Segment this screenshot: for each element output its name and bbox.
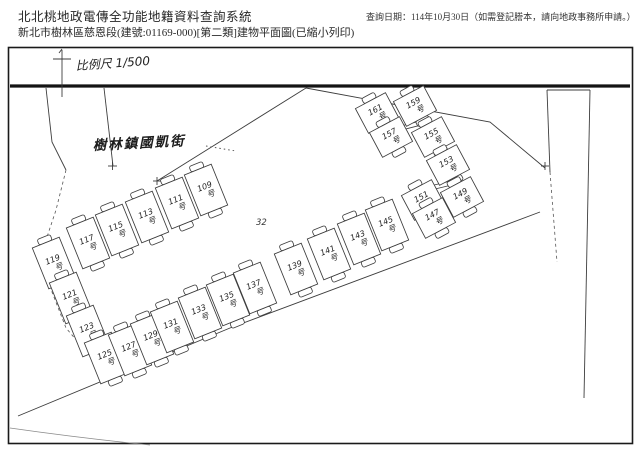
land-registry-floorplan-page: 北北桃地政電傳全功能地籍資料查詢系統 查詢日期：114年10月30日（如需登記謄… bbox=[0, 0, 640, 452]
lot-number-label: 32 bbox=[256, 218, 267, 228]
scale-label: 比例尺 1/500 bbox=[75, 54, 151, 73]
street-name-label: 樹林鎮國凱街 bbox=[92, 133, 186, 153]
floor-plan-svg: 109号111号113号115号117号119号121号123号125号127号… bbox=[0, 0, 640, 452]
north-cross-mark bbox=[53, 49, 71, 97]
building-units-layer: 109号111号113号115号117号119号121号123号125号127号… bbox=[30, 80, 486, 389]
